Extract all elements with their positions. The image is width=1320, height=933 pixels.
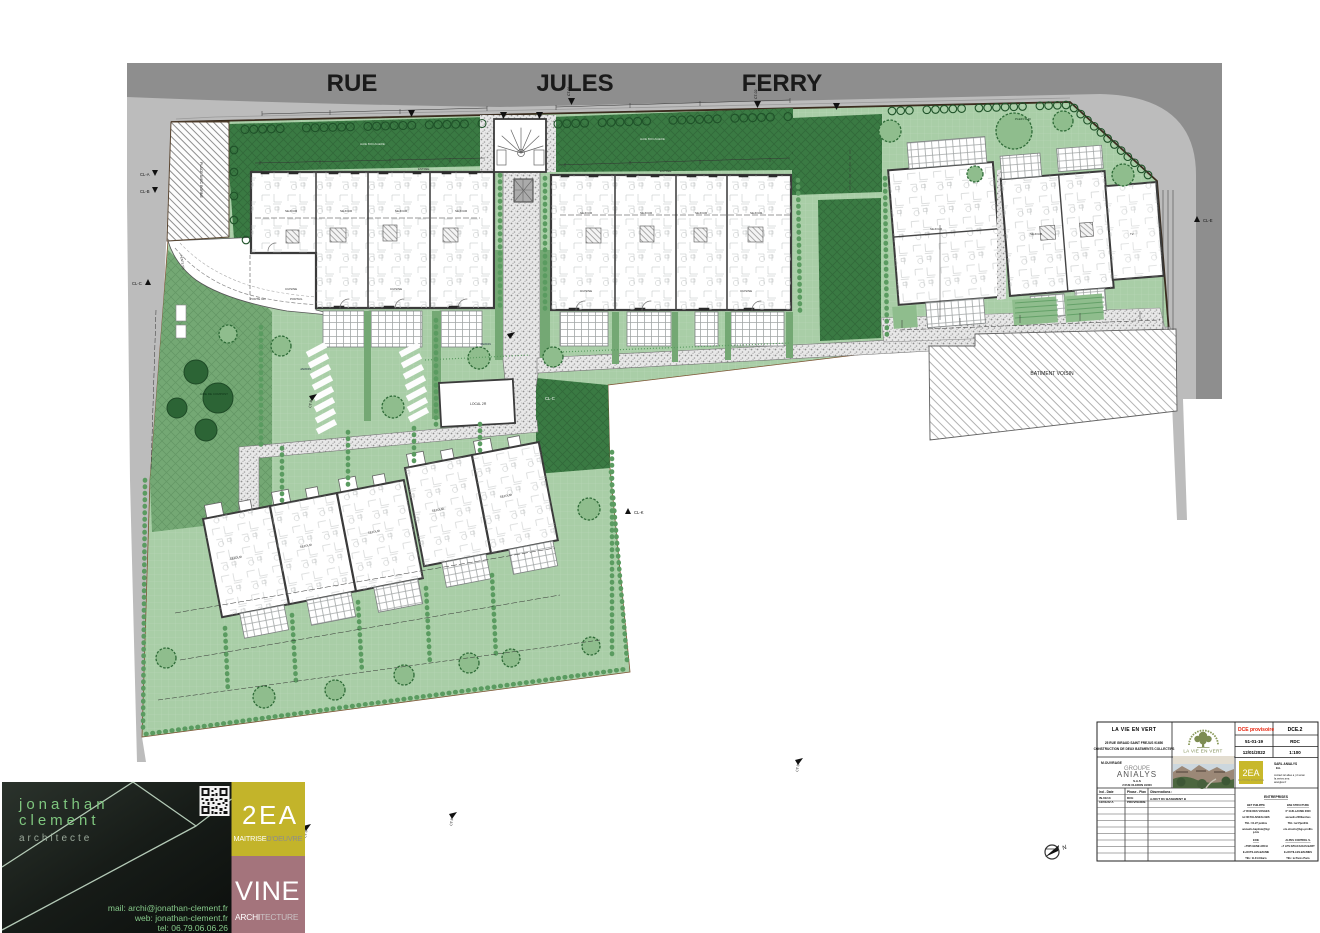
svg-text:E+OUTILLES.BAUMES: E+OUTILLES.BAUMES <box>1284 850 1312 854</box>
svg-text:arangles.fr: arangles.fr <box>1274 780 1286 784</box>
svg-text:ARCHITECTURE: ARCHITECTURE <box>235 912 299 922</box>
svg-text:CONSTRUCTION DE DEUX BATIMENTS: CONSTRUCTION DE DEUX BATIMENTS COLLECTIF… <box>1094 747 1175 751</box>
svg-text:tel 06 PALAISEAU-BIS: tel 06 PALAISEAU-BIS <box>1242 815 1270 819</box>
svg-text:SEJOUR: SEJOUR <box>750 211 763 215</box>
svg-text:CUISINE: CUISINE <box>740 289 752 293</box>
svg-text:HAIE BOCAGERE: HAIE BOCAGERE <box>640 137 665 141</box>
svg-text:CL-C: CL-C <box>545 396 555 401</box>
svg-text:jonathan: jonathan <box>18 796 109 813</box>
svg-text:ENTREE: ENTREE <box>660 169 671 173</box>
svg-text:ANIALYS: ANIALYS <box>1117 770 1157 779</box>
svg-text:AJOUT DU BASEMENT B: AJOUT DU BASEMENT B <box>1150 797 1187 801</box>
svg-text:PLEIN SUD: PLEIN SUD <box>1015 117 1032 121</box>
svg-text:PROVISOIRE: PROVISOIRE <box>1127 800 1146 804</box>
svg-text:+7 RUE DES VOSGES: +7 RUE DES VOSGES <box>1243 809 1270 813</box>
svg-text:SEJOUR: SEJOUR <box>455 209 468 213</box>
svg-text:N: N <box>1062 845 1069 852</box>
svg-text:JULES: JULES <box>536 70 613 97</box>
svg-text:E+OUTILLES.BAUME: E+OUTILLES.BAUME <box>1243 850 1270 854</box>
svg-text:12/01/22 A: 12/01/22 A <box>1099 800 1114 804</box>
svg-text:clement: clement <box>19 812 100 829</box>
svg-text:ets.structs@bgs-profits: ets.structs@bgs-profits <box>1283 827 1313 831</box>
svg-text:PORTE GD: PORTE GD <box>250 297 266 301</box>
svg-text:ECIE: ECIE <box>1253 838 1259 842</box>
svg-text:CL-E: CL-E <box>1203 218 1213 223</box>
svg-text:SEJOUR: SEJOUR <box>580 211 593 215</box>
svg-text:AIRE DE COMPOST: AIRE DE COMPOST <box>200 392 228 396</box>
svg-text:SEJOUR: SEJOUR <box>695 211 708 215</box>
svg-text:ENTREE: ENTREE <box>418 167 429 171</box>
svg-text:mail: archi@jonathan-clement.f: mail: archi@jonathan-clement.fr <box>108 903 228 913</box>
svg-text:CT-P: CT-P <box>449 817 454 826</box>
svg-text:2EA: 2EA <box>1242 768 1259 778</box>
svg-text:LOCAL 2R: LOCAL 2R <box>470 402 487 406</box>
svg-text:PLACE AVEC BORNE: PLACE AVEC BORNE <box>199 162 203 198</box>
svg-text:51-01-19: 51-01-19 <box>1245 739 1264 744</box>
svg-text:LA VIE EN VERT: LA VIE EN VERT <box>1112 727 1157 733</box>
svg-text:EA.: EA. <box>1276 766 1281 770</box>
svg-text:p-bis: p-bis <box>1253 830 1260 834</box>
svg-text:2EA: 2EA <box>242 800 299 830</box>
svg-text:DCE provisoire: DCE provisoire <box>1238 727 1274 733</box>
svg-text:JARDIN: JARDIN <box>300 367 311 371</box>
svg-text:CL-B: CL-B <box>140 189 150 194</box>
svg-text:Phase - Plan: Phase - Plan <box>1127 790 1146 794</box>
svg-text:MAITRISED'OEUVRE: MAITRISED'OEUVRE <box>234 834 303 843</box>
svg-text:RDC: RDC <box>1290 739 1300 744</box>
svg-text:1:100: 1:100 <box>1289 750 1301 755</box>
svg-text:Observations :: Observations : <box>1150 790 1172 794</box>
svg-text:CUISINE: CUISINE <box>390 287 402 291</box>
svg-text:CL-A: CL-A <box>140 172 150 177</box>
svg-text:BSE STRUCTURE: BSE STRUCTURE <box>1287 803 1309 807</box>
svg-text:HAIE BOCAGERE: HAIE BOCAGERE <box>360 142 385 146</box>
svg-text:CL-C: CL-C <box>132 281 142 286</box>
svg-text:CT-D: CT-D <box>795 763 800 772</box>
svg-text:12/01/2022: 12/01/2022 <box>1243 750 1266 755</box>
svg-text:CUISINE: CUISINE <box>285 287 297 291</box>
svg-text:CT-02: CT-02 <box>754 89 758 99</box>
svg-text:Ind - Date: Ind - Date <box>1099 790 1114 794</box>
svg-text:web: jonathan-clement.fr: web: jonathan-clement.fr <box>134 913 228 923</box>
svg-text:SEJOUR: SEJOUR <box>285 209 298 213</box>
svg-text:CT-01: CT-01 <box>567 86 571 96</box>
svg-text:PORTAIL: PORTAIL <box>290 297 303 301</box>
svg-text:TEL: th.01.04/aris: TEL: th.01.04/aris <box>1245 856 1267 860</box>
svg-text:+7 LPS 225ACACIAS BART: +7 LPS 225ACACIAS BART <box>1281 844 1315 848</box>
svg-text:TEL: le Parcs Paris: TEL: le Parcs Paris <box>1286 856 1310 860</box>
svg-text:MAITRISE D'OEUVRE: MAITRISE D'OEUVRE <box>1238 778 1265 782</box>
svg-text:BET PHILIPPE: BET PHILIPPE <box>1247 803 1265 807</box>
svg-text:VINE: VINE <box>235 876 300 906</box>
svg-text:SEJOUR: SEJOUR <box>340 209 353 213</box>
svg-text:6° GUILLAUME 2000: 6° GUILLAUME 2000 <box>1285 809 1311 813</box>
svg-text:JARDIN: JARDIN <box>480 342 491 346</box>
svg-text:ENTREPRISES: ENTREPRISES <box>1264 795 1289 799</box>
svg-text:25 RUE GIRAUD SAINT FREJUS 916: 25 RUE GIRAUD SAINT FREJUS 91650 <box>1105 741 1164 745</box>
svg-text:contact tel aliee a j d veran: contact tel aliee a j d veran <box>1274 773 1305 777</box>
svg-text:ALPES CONTROL S.: ALPES CONTROL S. <box>1285 838 1311 842</box>
svg-text:2 RUE OLERON 91000: 2 RUE OLERON 91000 <box>1122 783 1152 787</box>
svg-text:DCE.2: DCE.2 <box>1288 727 1303 733</box>
svg-text:accueils.2000arches: accueils.2000arches <box>1285 815 1311 819</box>
svg-text:SEJOUR: SEJOUR <box>1030 232 1043 236</box>
svg-text:BATIMENT VOISIN: BATIMENT VOISIN <box>1030 371 1074 377</box>
svg-text:TEL: 01.27 jardins: TEL: 01.27 jardins <box>1245 821 1268 825</box>
svg-text:RUE: RUE <box>327 70 378 97</box>
svg-text:SEJOUR: SEJOUR <box>395 209 408 213</box>
svg-text:TEL: tert7jun01b: TEL: tert7jun01b <box>1288 821 1309 825</box>
svg-text:fa.vertes arra: fa.vertes arra <box>1274 777 1290 781</box>
svg-text:SEJOUR: SEJOUR <box>640 211 653 215</box>
svg-text:tel: 06.79.06.06.26: tel: 06.79.06.06.26 <box>158 923 229 933</box>
svg-text:M.OUVRAGE: M.OUVRAGE <box>1101 761 1123 765</box>
svg-text:T2: T2 <box>1130 232 1134 236</box>
svg-text:CL-K: CL-K <box>634 510 644 515</box>
svg-text:SEJOUR: SEJOUR <box>930 227 943 231</box>
svg-text:architecte: architecte <box>19 833 92 844</box>
svg-text:LA VIE EN VERT: LA VIE EN VERT <box>1183 749 1222 754</box>
svg-text:CUISINE: CUISINE <box>580 289 592 293</box>
svg-text:+7565 GENE ARCH: +7565 GENE ARCH <box>1244 844 1268 848</box>
